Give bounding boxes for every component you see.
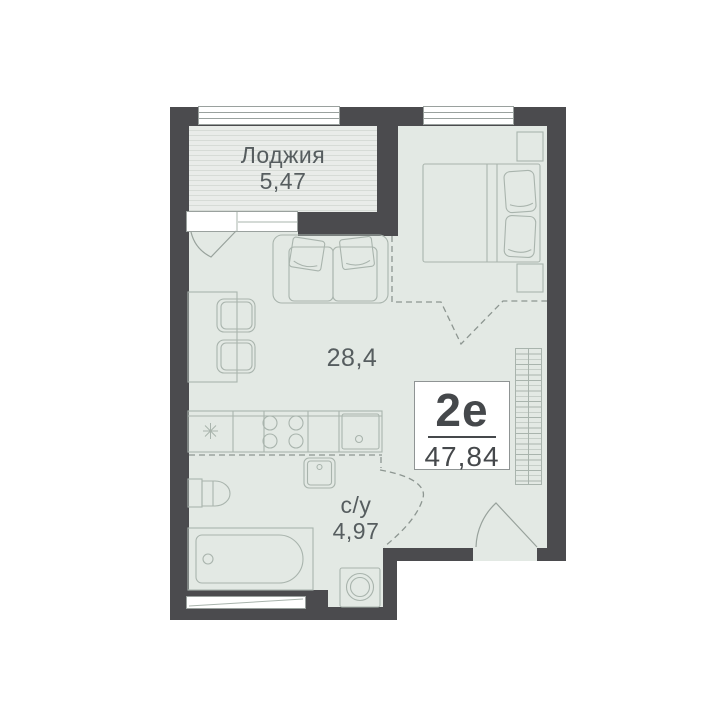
unit-type: 2е xyxy=(415,387,509,433)
bed xyxy=(423,164,540,262)
kitchen-sink-icon xyxy=(342,414,379,449)
chair-top xyxy=(217,299,255,332)
bathroom-zone-dashed-boundary xyxy=(189,455,382,468)
washing-machine-icon xyxy=(340,568,380,607)
nightstand-top xyxy=(517,132,543,161)
unit-total-area: 47,84 xyxy=(415,441,509,473)
fridge-icon xyxy=(203,423,218,439)
stove-icon xyxy=(263,416,303,448)
toilet-icon xyxy=(188,479,230,507)
unit-badge-divider xyxy=(428,436,496,438)
balcony-door-swing-icon xyxy=(191,231,236,257)
living-room-area: 28,4 xyxy=(302,345,402,371)
chair-bottom xyxy=(217,340,255,373)
dining-table xyxy=(188,292,237,382)
balcony-window-divider xyxy=(237,212,297,231)
bath-window-diagonal xyxy=(189,599,303,606)
nightstand-bottom xyxy=(517,264,543,292)
bathroom-label: с/у xyxy=(306,493,406,517)
bathroom-area: 4,97 xyxy=(306,519,406,543)
floor-plan: Лоджия 5,47 28,4 с/у 4,97 2е 47,84 xyxy=(0,0,726,726)
bathroom-sink-icon xyxy=(304,458,335,488)
loggia-area: 5,47 xyxy=(189,169,377,193)
unit-badge: 2е 47,84 xyxy=(414,381,510,470)
sofa xyxy=(273,235,388,303)
entry-door-swing-icon xyxy=(476,503,537,547)
bathtub-icon xyxy=(188,528,313,590)
loggia-label: Лоджия xyxy=(189,143,377,167)
